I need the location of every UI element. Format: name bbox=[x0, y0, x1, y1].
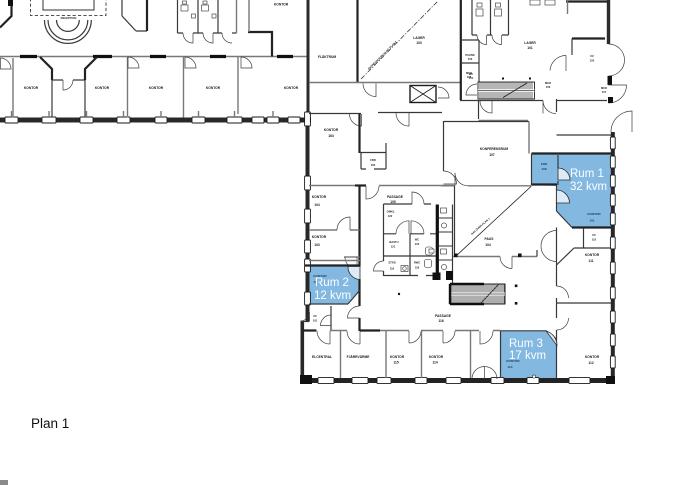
svg-text:Rum 1: Rum 1 bbox=[570, 168, 604, 180]
svg-text:PAUS: PAUS bbox=[485, 237, 495, 241]
svg-text:FLÄKTRUM: FLÄKTRUM bbox=[318, 55, 337, 59]
svg-text:KONTOR: KONTOR bbox=[429, 355, 444, 359]
svg-text:103: 103 bbox=[416, 41, 422, 45]
svg-text:122: 122 bbox=[388, 214, 393, 218]
svg-text:MCD: MCD bbox=[545, 81, 551, 85]
svg-text:164: 164 bbox=[328, 134, 334, 138]
svg-text:RECEPTION: RECEPTION bbox=[61, 16, 77, 20]
svg-text:V.F: V.F bbox=[313, 314, 317, 318]
svg-text:116: 116 bbox=[438, 319, 443, 323]
svg-text:120: 120 bbox=[415, 242, 420, 246]
svg-text:101: 101 bbox=[313, 319, 318, 323]
svg-text:KONFERENSRUM: KONFERENSRUM bbox=[480, 147, 508, 151]
svg-text:LAGER: LAGER bbox=[524, 41, 536, 45]
svg-text:KONTOR: KONTOR bbox=[390, 355, 405, 359]
svg-text:FRD: FRD bbox=[370, 158, 376, 162]
svg-text:104: 104 bbox=[314, 203, 320, 207]
svg-text:101: 101 bbox=[527, 46, 533, 50]
svg-text:RWC: RWC bbox=[414, 261, 420, 265]
svg-text:STÄD: STÄD bbox=[388, 261, 395, 265]
svg-text:152: 152 bbox=[468, 57, 473, 61]
svg-text:KONTOR: KONTOR bbox=[206, 86, 221, 90]
svg-text:157: 157 bbox=[602, 90, 607, 94]
svg-text:PASSAGE: PASSAGE bbox=[435, 314, 452, 318]
svg-text:101: 101 bbox=[589, 219, 594, 223]
svg-text:WC: WC bbox=[415, 238, 420, 242]
svg-text:114: 114 bbox=[432, 361, 437, 365]
svg-text:BASTU: BASTU bbox=[389, 240, 398, 244]
svg-text:156: 156 bbox=[546, 85, 551, 89]
svg-text:ELCENTRAL: ELCENTRAL bbox=[312, 355, 332, 359]
svg-text:160: 160 bbox=[371, 163, 376, 167]
svg-text:Plan 1: Plan 1 bbox=[31, 416, 69, 431]
svg-text:107: 107 bbox=[489, 153, 495, 157]
svg-text:KONTOR: KONTOR bbox=[587, 212, 601, 216]
svg-text:121: 121 bbox=[391, 245, 396, 249]
svg-text:FJÄRRVÄRME: FJÄRRVÄRME bbox=[347, 355, 371, 359]
svg-text:118: 118 bbox=[415, 266, 420, 270]
svg-text:KONTOR: KONTOR bbox=[585, 253, 600, 257]
svg-text:FRD: FRD bbox=[541, 162, 548, 166]
svg-text:108: 108 bbox=[541, 167, 546, 171]
svg-text:KONTOR: KONTOR bbox=[585, 355, 600, 359]
svg-text:KONTOR: KONTOR bbox=[24, 86, 39, 90]
svg-text:17 kvm: 17 kvm bbox=[509, 350, 546, 362]
svg-text:111: 111 bbox=[588, 259, 593, 263]
svg-text:12 kvm: 12 kvm bbox=[314, 290, 351, 302]
svg-text:115: 115 bbox=[393, 361, 398, 365]
svg-text:KONTOR: KONTOR bbox=[324, 128, 339, 132]
svg-text:Rum 2: Rum 2 bbox=[315, 277, 349, 289]
svg-text:119: 119 bbox=[390, 267, 395, 271]
svg-text:V.F: V.F bbox=[590, 54, 594, 58]
svg-text:112: 112 bbox=[588, 361, 593, 365]
svg-text:MCD: MCD bbox=[601, 86, 607, 90]
svg-text:KONTOR: KONTOR bbox=[312, 235, 327, 239]
svg-text:KONTOR: KONTOR bbox=[149, 86, 164, 90]
svg-text:KONTOR: KONTOR bbox=[95, 86, 110, 90]
svg-text:KONTOR: KONTOR bbox=[312, 195, 327, 199]
svg-text:OMKL.: OMKL. bbox=[387, 210, 396, 214]
svg-text:Rum 3: Rum 3 bbox=[509, 338, 543, 350]
svg-text:104: 104 bbox=[485, 243, 491, 247]
svg-text:103: 103 bbox=[314, 243, 320, 247]
svg-text:LAGER: LAGER bbox=[413, 36, 425, 40]
svg-text:KONTOR: KONTOR bbox=[274, 3, 289, 7]
svg-text:V.F: V.F bbox=[592, 233, 596, 237]
svg-text:MCD: MCD bbox=[466, 71, 472, 75]
svg-text:PASSAGE: PASSAGE bbox=[387, 195, 404, 199]
svg-text:32 kvm: 32 kvm bbox=[570, 181, 607, 193]
svg-text:110: 110 bbox=[592, 238, 597, 242]
svg-text:150: 150 bbox=[590, 59, 595, 63]
svg-text:113: 113 bbox=[508, 365, 513, 369]
svg-text:PAUSR: PAUSR bbox=[465, 53, 474, 57]
svg-text:KONTOR: KONTOR bbox=[284, 86, 299, 90]
svg-text:158: 158 bbox=[467, 75, 472, 79]
